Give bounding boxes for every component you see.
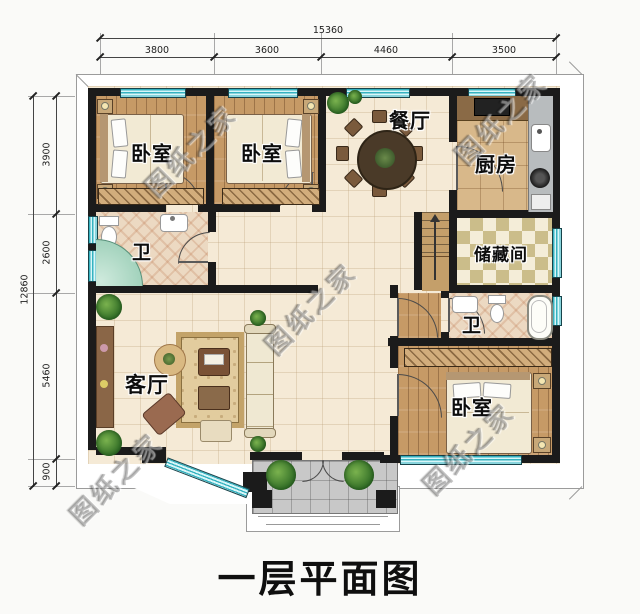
kitchen-appliance bbox=[531, 194, 551, 210]
bathtub-inner bbox=[531, 300, 547, 333]
room-label-bath-1: 卫 bbox=[132, 238, 152, 265]
cabinet-decor bbox=[100, 344, 108, 352]
door-leaf-corridor bbox=[397, 298, 399, 336]
wall-dining-kitchen-b bbox=[449, 190, 457, 212]
window-bath2 bbox=[552, 296, 562, 326]
headboard bbox=[446, 372, 530, 380]
toilet-bowl bbox=[490, 304, 504, 323]
plant bbox=[327, 92, 349, 114]
dim-left-seg-2: 2600 bbox=[42, 228, 53, 278]
side-cabinet bbox=[96, 326, 114, 428]
wall-entry-right bbox=[342, 452, 384, 460]
dim-line-left-total bbox=[33, 96, 34, 487]
extension-line bbox=[28, 96, 75, 97]
toilet-tank bbox=[488, 295, 506, 304]
dim-top-seg-3: 4460 bbox=[336, 45, 436, 56]
dining-chair bbox=[372, 110, 387, 123]
wall-bedrooms-bottom-c bbox=[312, 204, 326, 212]
door-leaf-bedroom3 bbox=[397, 374, 399, 416]
plant bbox=[250, 436, 266, 452]
porch-step bbox=[258, 516, 388, 517]
lamp bbox=[538, 377, 546, 385]
dim-top-seg-4: 3500 bbox=[454, 45, 554, 56]
plant bbox=[348, 90, 362, 104]
plant bbox=[250, 310, 266, 326]
dim-top-total: 15360 bbox=[278, 25, 378, 36]
dim-left-seg-4: 900 bbox=[42, 447, 53, 497]
wall-entry-left bbox=[250, 452, 302, 460]
pillow bbox=[111, 149, 128, 178]
porch-post bbox=[376, 490, 396, 508]
wall-living-top bbox=[88, 285, 318, 293]
wall-bath1-right-b bbox=[208, 262, 216, 285]
porch-step bbox=[266, 524, 380, 525]
pillow bbox=[285, 149, 302, 178]
dim-top-seg-1: 3800 bbox=[107, 45, 207, 56]
door-leaf-bath2 bbox=[448, 298, 450, 332]
headboard bbox=[100, 114, 108, 182]
room-label-bedroom-2: 卧室 bbox=[241, 138, 283, 167]
porch-plant bbox=[344, 460, 374, 490]
wall-bedrooms-bottom-b bbox=[198, 204, 280, 212]
window-bedroom1 bbox=[120, 88, 186, 98]
faucet bbox=[170, 216, 175, 221]
window-bedroom2 bbox=[228, 88, 298, 98]
dim-left-total: 12860 bbox=[20, 265, 31, 315]
stairs-arrow-head bbox=[430, 214, 440, 222]
headboard bbox=[302, 114, 310, 182]
pillow bbox=[111, 118, 129, 147]
room-label-living: 客厅 bbox=[125, 369, 169, 399]
room-label-dining: 餐厅 bbox=[389, 105, 431, 134]
kitchen-sink bbox=[531, 124, 551, 152]
coffee-table-lower bbox=[198, 386, 230, 410]
wall-stairs-left bbox=[414, 212, 422, 290]
stove-burner bbox=[530, 168, 550, 188]
plant bbox=[96, 294, 122, 320]
pillow bbox=[285, 118, 303, 147]
wardrobe-symbol bbox=[222, 188, 320, 205]
extension-line bbox=[28, 293, 75, 294]
wall-bath1-right-a bbox=[208, 212, 216, 232]
stairs-landing bbox=[422, 256, 449, 291]
porch-plant bbox=[266, 460, 296, 490]
extension-line bbox=[28, 214, 75, 215]
dining-chair bbox=[336, 146, 349, 161]
dim-line-top-segments bbox=[100, 57, 557, 58]
floor-plan-page: 15360 3800 3600 4460 3500 12860 3900 260… bbox=[0, 0, 640, 614]
cabinet-decor bbox=[100, 380, 108, 388]
stairs-arrow-line bbox=[434, 222, 436, 280]
table-plant bbox=[163, 353, 175, 365]
faucet bbox=[537, 129, 542, 134]
dim-left-seg-3: 5460 bbox=[42, 351, 53, 401]
wall-stairs-right bbox=[449, 210, 457, 290]
door-leaf-bath1 bbox=[178, 261, 208, 263]
lamp bbox=[101, 102, 109, 110]
room-label-bath-2: 卫 bbox=[462, 311, 482, 338]
dim-line-top-total bbox=[100, 38, 557, 39]
wall-bed3-left-a bbox=[390, 285, 398, 298]
window-storage bbox=[552, 228, 562, 278]
wall-bedrooms-bottom-a bbox=[88, 204, 166, 212]
ottoman bbox=[200, 420, 232, 442]
dim-left-seg-1: 3900 bbox=[42, 130, 53, 180]
lamp bbox=[538, 441, 546, 449]
table-tray bbox=[204, 354, 224, 365]
wall-bed3-left-b bbox=[390, 336, 398, 368]
wardrobe-symbol bbox=[404, 348, 552, 367]
lamp bbox=[307, 102, 315, 110]
table-centerpiece bbox=[375, 148, 395, 168]
porch-post bbox=[252, 490, 272, 508]
dim-top-seg-2: 3600 bbox=[217, 45, 317, 56]
rug bbox=[176, 332, 244, 428]
roof-miter bbox=[569, 61, 582, 74]
page-title: 一层平面图 bbox=[160, 548, 480, 603]
wall-storage-bottom bbox=[441, 285, 560, 293]
room-label-storage: 储藏间 bbox=[474, 241, 528, 266]
toilet-tank bbox=[99, 216, 119, 226]
wall-bed3-left-c bbox=[390, 416, 398, 455]
